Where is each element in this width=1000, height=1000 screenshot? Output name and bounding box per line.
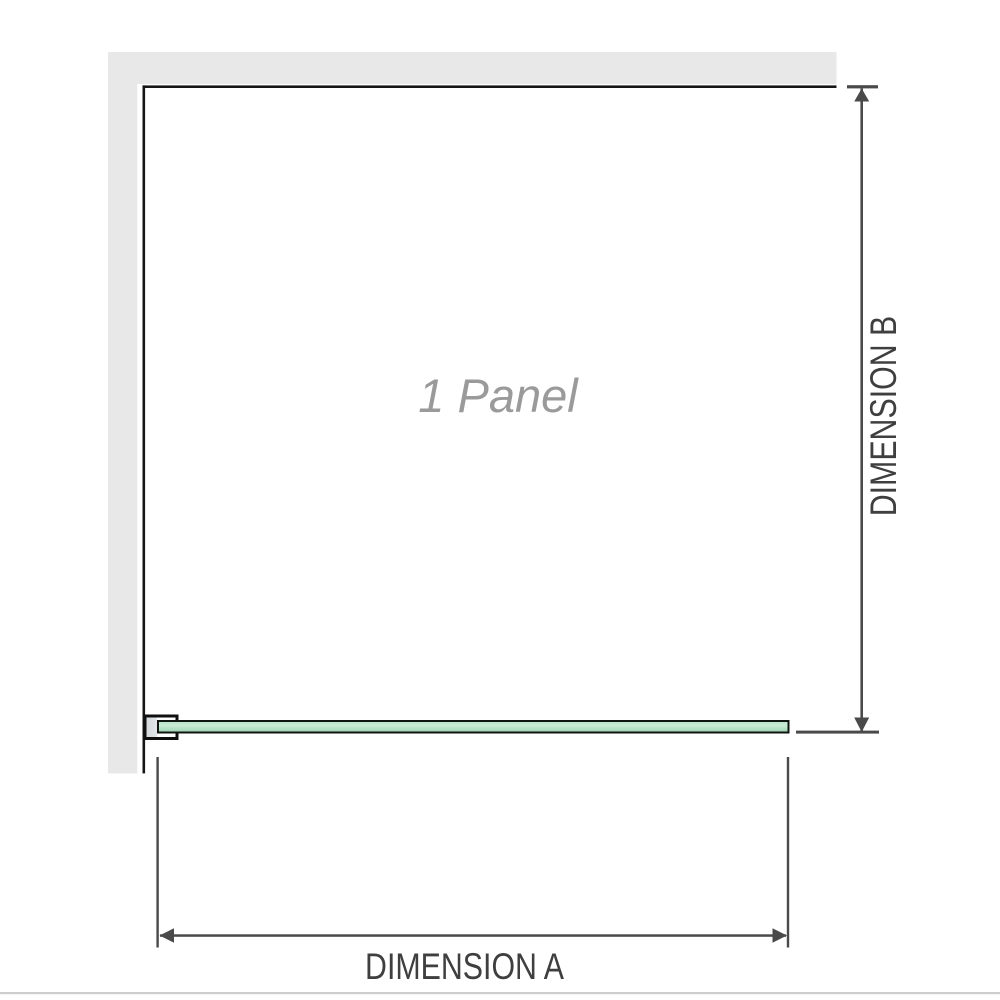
svg-text:DIMENSION A: DIMENSION A <box>365 946 564 988</box>
svg-text:DIMENSION B: DIMENSION B <box>863 316 905 517</box>
svg-text:1 Panel: 1 Panel <box>418 369 579 422</box>
